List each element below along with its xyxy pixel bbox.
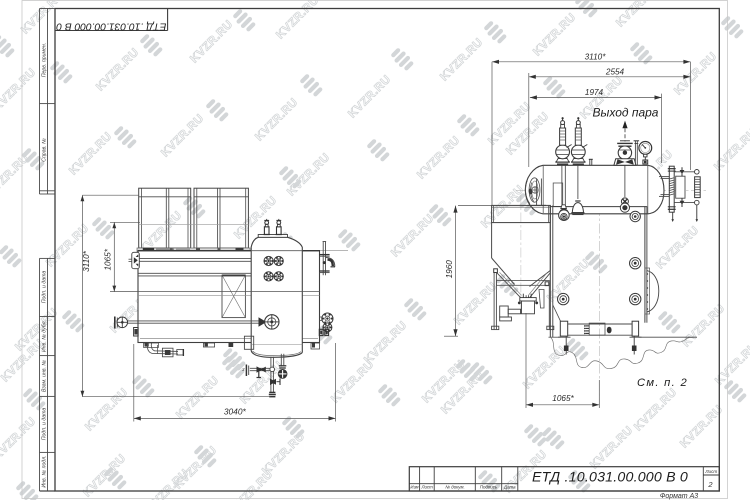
- svg-text:1065*: 1065*: [104, 248, 113, 270]
- svg-text:ЕТД .10.031.00.000 В 0: ЕТД .10.031.00.000 В 0: [56, 21, 166, 32]
- svg-text:Лист: Лист: [421, 484, 434, 489]
- svg-text:Подп. и дата: Подп. и дата: [42, 271, 48, 304]
- svg-text:3110*: 3110*: [82, 250, 91, 272]
- svg-text:Инв. № подл.: Инв. № подл.: [42, 455, 48, 487]
- svg-text:Подп. и дата: Подп. и дата: [42, 408, 48, 441]
- svg-text:2554: 2554: [605, 67, 625, 76]
- svg-text:Инв. № дубл.: Инв. № дубл.: [42, 320, 48, 352]
- svg-text:3110*: 3110*: [585, 52, 607, 61]
- svg-text:№ докум.: № докум.: [445, 484, 464, 489]
- svg-text:Формат А3: Формат А3: [660, 493, 698, 500]
- svg-text:Изм: Изм: [410, 484, 418, 489]
- svg-text:Перв. примен.: Перв. примен.: [42, 43, 48, 77]
- svg-text:1065*: 1065*: [552, 394, 574, 403]
- svg-text:Взам. инв. №: Взам. инв. №: [42, 360, 48, 392]
- svg-text:См. п. 2: См. п. 2: [637, 377, 688, 389]
- svg-text:2: 2: [707, 480, 713, 489]
- svg-text:Справ. №: Справ. №: [42, 138, 48, 162]
- svg-text:Лист: Лист: [704, 469, 717, 474]
- svg-text:1974: 1974: [585, 88, 604, 97]
- svg-text:Подпись: Подпись: [480, 484, 498, 489]
- svg-text:Дата: Дата: [503, 484, 516, 489]
- svg-text:Выход пара: Выход пара: [593, 105, 659, 119]
- svg-text:ЕТД .10.031.00.000 В 0: ЕТД .10.031.00.000 В 0: [532, 470, 688, 486]
- svg-text:3040*: 3040*: [224, 407, 247, 417]
- svg-text:1960: 1960: [445, 260, 454, 279]
